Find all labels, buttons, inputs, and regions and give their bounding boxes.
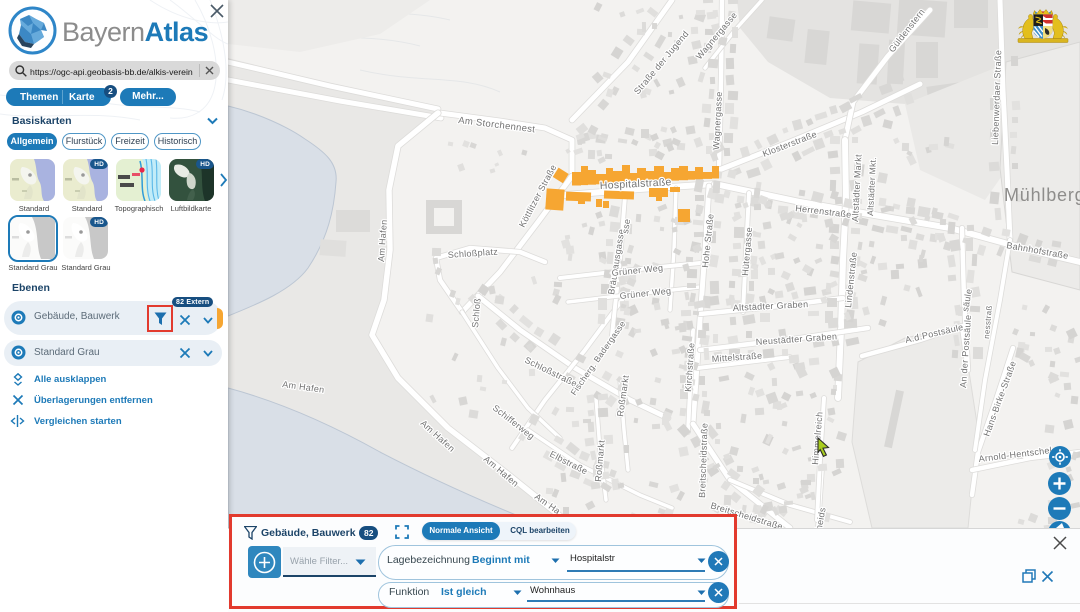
svg-text:Mühlberg: Mühlberg xyxy=(1004,185,1080,205)
